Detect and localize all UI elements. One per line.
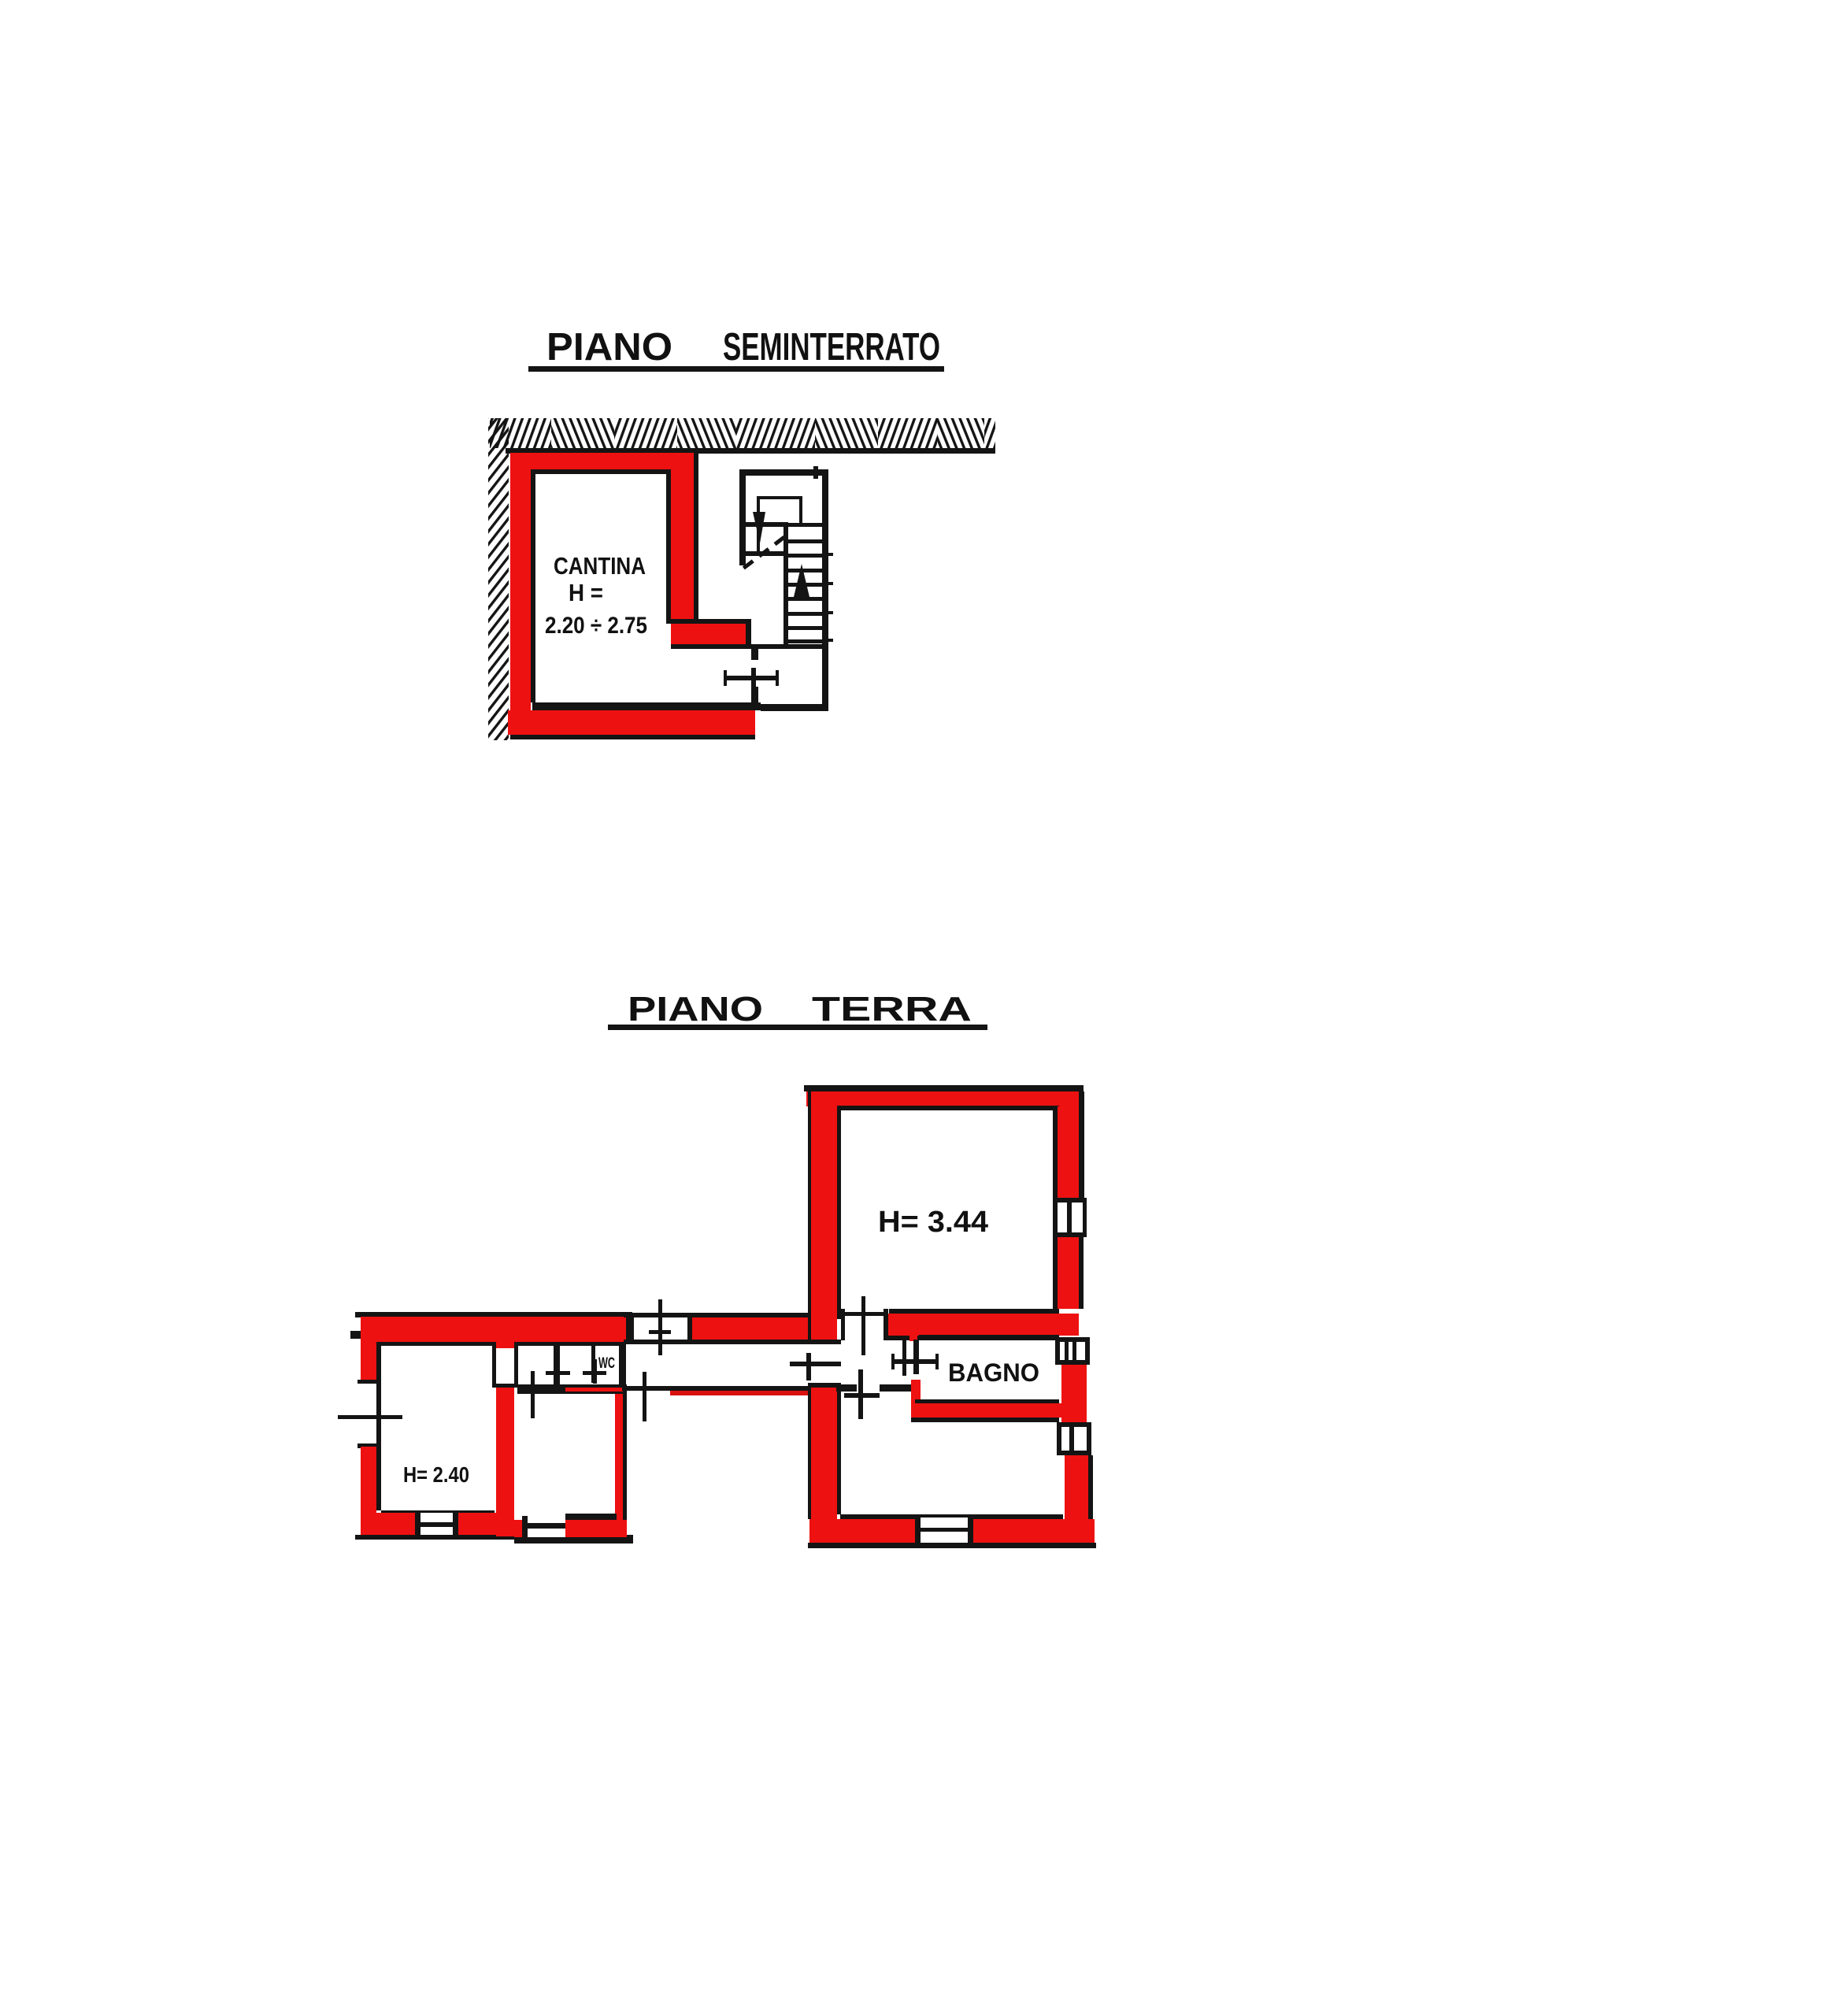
svg-text:2.20 ÷ 2.75: 2.20 ÷ 2.75	[545, 613, 647, 639]
svg-text:WC: WC	[598, 1355, 615, 1372]
svg-text:H =: H =	[569, 579, 603, 606]
svg-text:SEMINTERRATO: SEMINTERRATO	[723, 326, 940, 369]
svg-text:H= 2.40: H= 2.40	[403, 1462, 469, 1487]
svg-text:PIANO: PIANO	[628, 990, 763, 1028]
svg-text:TERRA: TERRA	[812, 990, 972, 1028]
svg-text:H= 3.44: H= 3.44	[878, 1206, 988, 1239]
svg-text:PIANO: PIANO	[546, 326, 672, 369]
svg-text:BAGNO: BAGNO	[948, 1358, 1039, 1387]
svg-text:CANTINA: CANTINA	[554, 552, 646, 580]
